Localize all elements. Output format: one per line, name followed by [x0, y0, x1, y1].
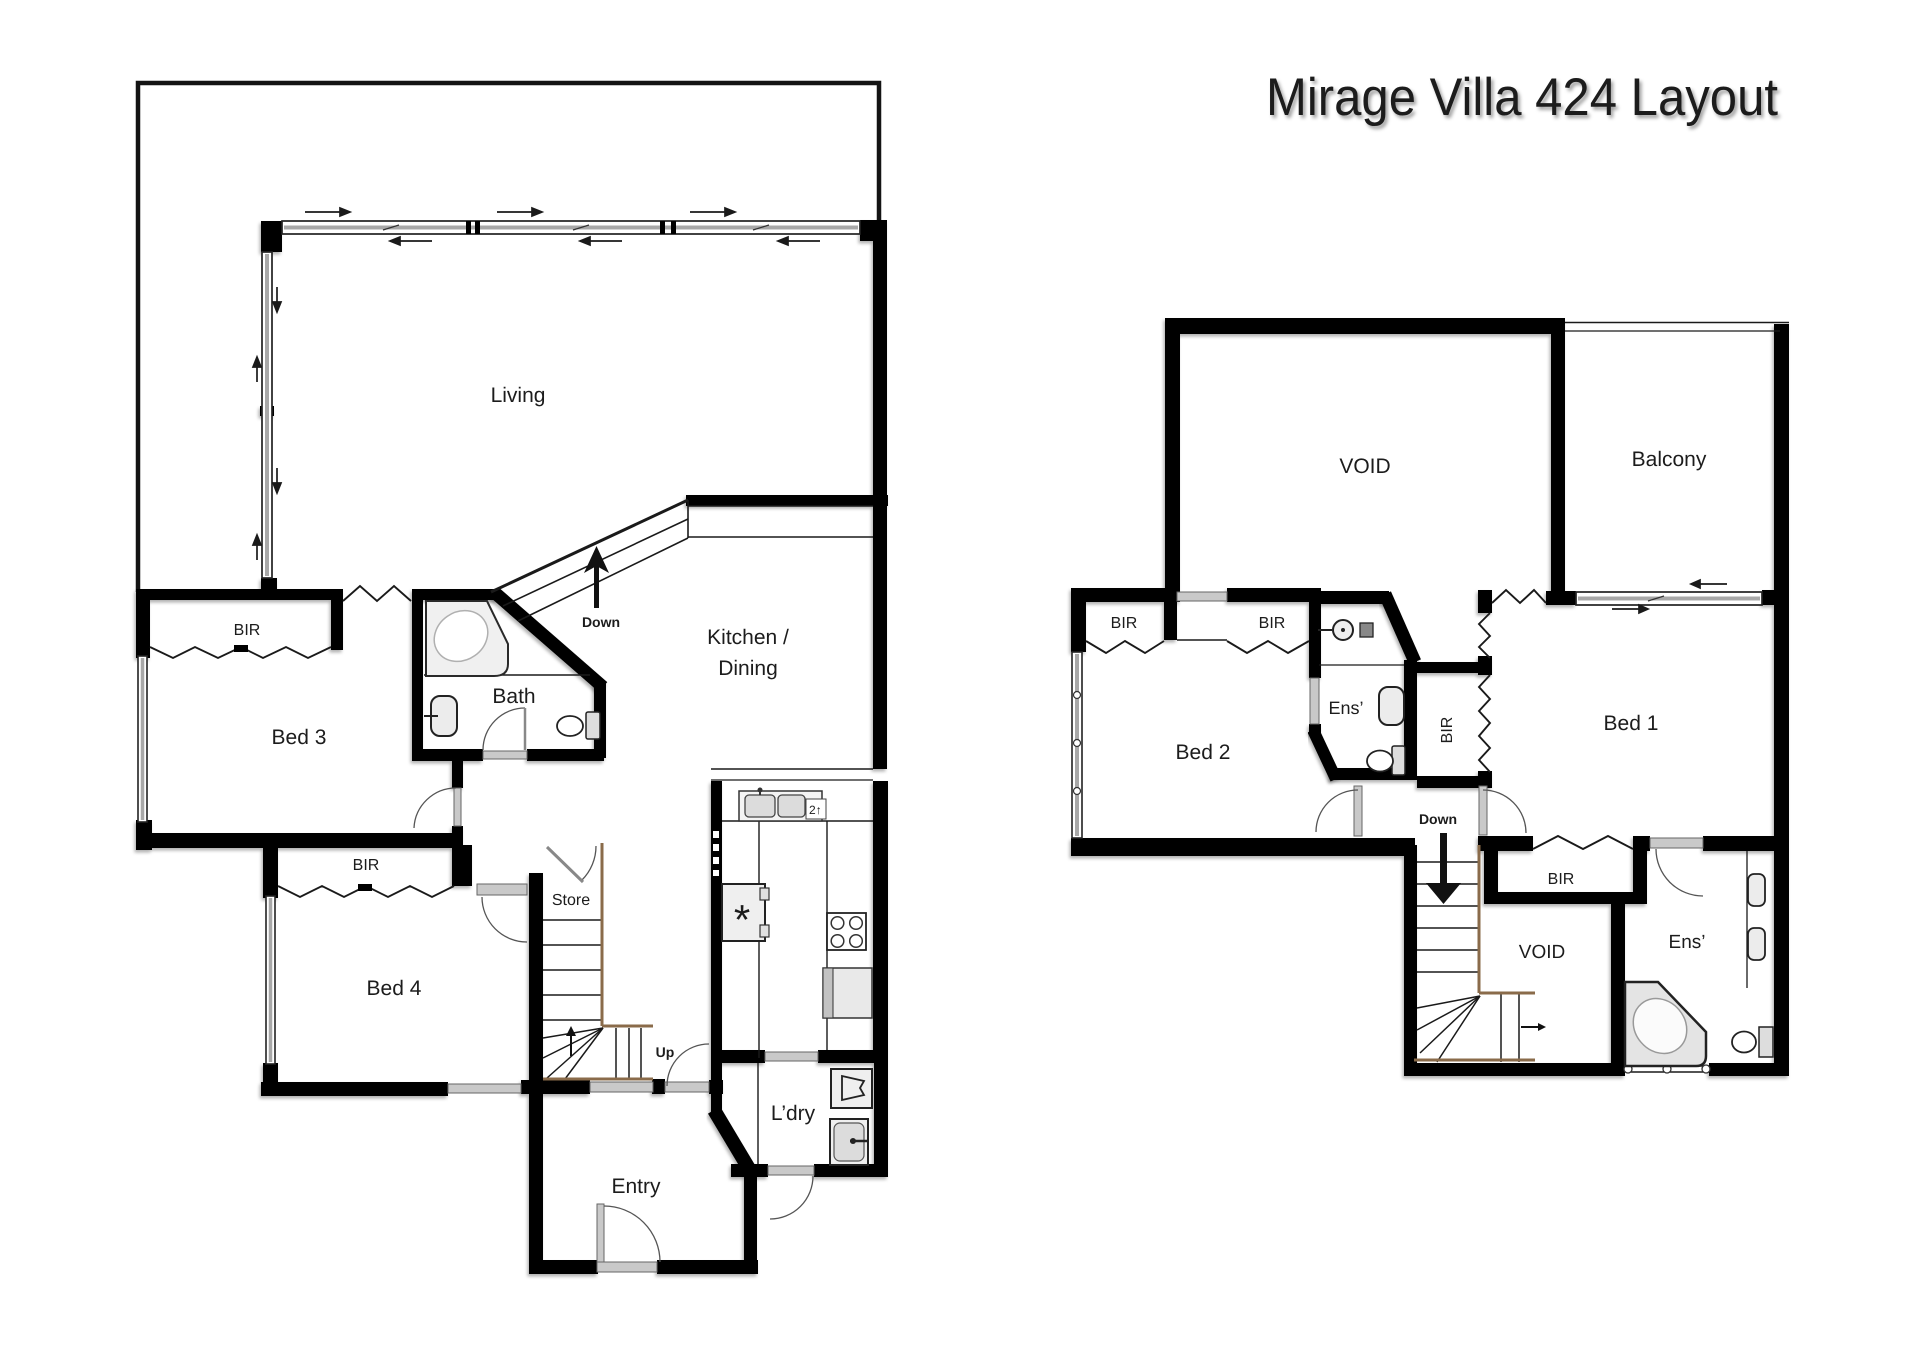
svg-text:Mirage Villa 424 Layout: Mirage Villa 424 Layout [1266, 68, 1778, 127]
svg-text:BIR: BIR [353, 857, 380, 874]
svg-text:Store: Store [552, 892, 590, 909]
svg-text:Bed 4: Bed 4 [367, 977, 422, 1000]
svg-text:Up: Up [656, 1044, 675, 1060]
svg-text:BIR: BIR [1548, 871, 1575, 888]
svg-text:VOID: VOID [1339, 455, 1390, 478]
svg-text:Down: Down [582, 614, 620, 630]
svg-text:Entry: Entry [611, 1175, 661, 1198]
svg-text:Ens’: Ens’ [1328, 698, 1363, 718]
svg-text:BIR: BIR [234, 622, 261, 639]
svg-text:Down: Down [1419, 811, 1457, 827]
svg-text:Dining: Dining [718, 657, 778, 680]
svg-text:Balcony: Balcony [1632, 448, 1707, 471]
svg-text:Ens’: Ens’ [1669, 932, 1706, 953]
svg-text:Bed 3: Bed 3 [272, 726, 327, 749]
svg-text:L’dry: L’dry [771, 1102, 816, 1125]
svg-text:BIR: BIR [1439, 717, 1456, 744]
svg-text:Bed 2: Bed 2 [1176, 741, 1231, 764]
svg-text:2↑: 2↑ [809, 803, 822, 817]
svg-text:BIR: BIR [1259, 615, 1286, 632]
svg-text:Living: Living [491, 384, 546, 407]
svg-text:Bed 1: Bed 1 [1604, 712, 1659, 735]
svg-text:Kitchen /: Kitchen / [707, 626, 789, 649]
svg-text:BIR: BIR [1111, 615, 1138, 632]
svg-text:VOID: VOID [1519, 942, 1565, 963]
svg-text:Bath: Bath [492, 685, 535, 708]
svg-text:*: * [734, 896, 750, 943]
